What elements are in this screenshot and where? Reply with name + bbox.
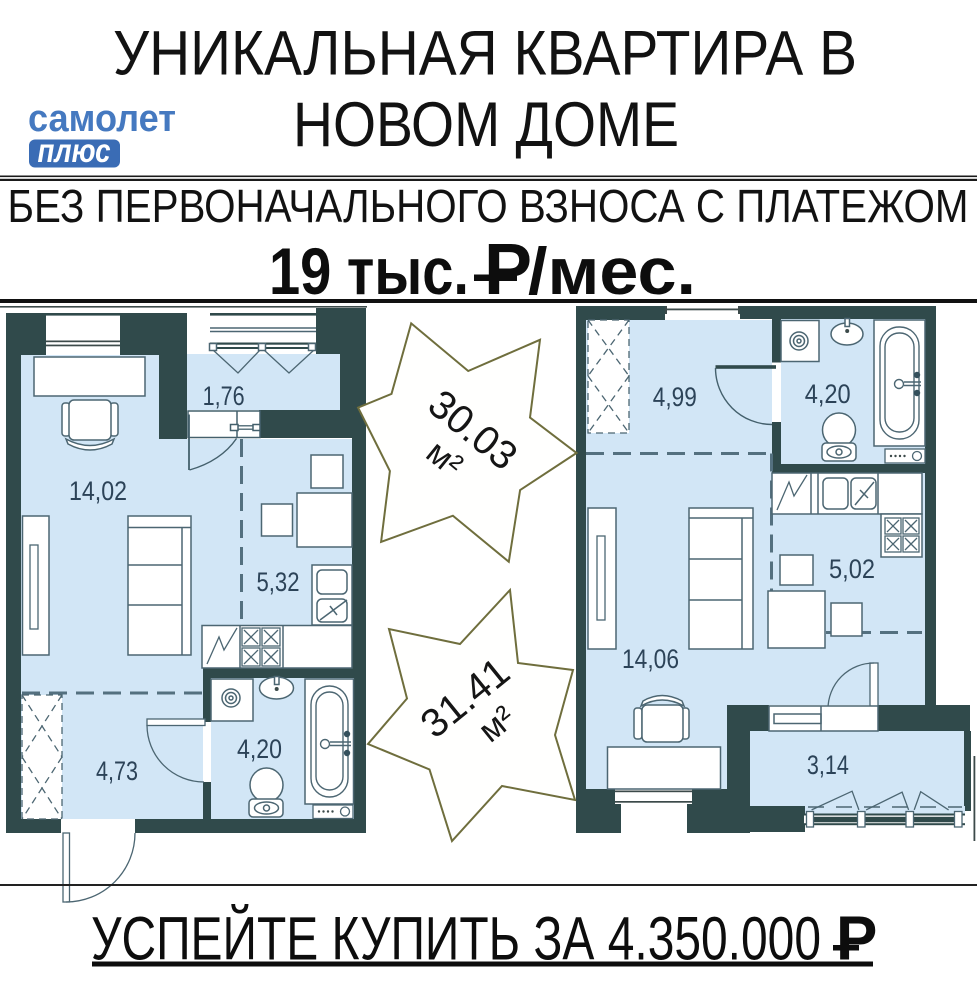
- svg-text:14,02: 14,02: [69, 476, 127, 506]
- svg-text:БЕЗ ПЕРВОНАЧАЛЬНОГО ВЗНОСА С П: БЕЗ ПЕРВОНАЧАЛЬНОГО ВЗНОСА С ПЛАТЕЖОМ: [8, 180, 969, 232]
- svg-text:5,32: 5,32: [257, 567, 300, 597]
- svg-text:1,76: 1,76: [203, 381, 245, 411]
- svg-text:УНИКАЛЬНАЯ КВАРТИРА В: УНИКАЛЬНАЯ КВАРТИРА В: [113, 19, 857, 89]
- svg-text:4,99: 4,99: [653, 382, 697, 412]
- svg-text:19 тыс.: 19 тыс.: [269, 234, 469, 308]
- svg-text:/мес.: /мес.: [528, 234, 696, 308]
- svg-text:3,14: 3,14: [807, 750, 849, 780]
- svg-text:НОВОМ ДОМЕ: НОВОМ ДОМЕ: [293, 90, 679, 160]
- svg-text:5,02: 5,02: [829, 554, 875, 584]
- svg-text:плюс: плюс: [38, 132, 111, 169]
- svg-text:4,73: 4,73: [96, 756, 138, 786]
- svg-text:4,20: 4,20: [237, 734, 282, 764]
- svg-text:4,20: 4,20: [805, 379, 851, 409]
- svg-text:Р: Р: [484, 230, 532, 310]
- svg-text:14,06: 14,06: [622, 644, 679, 674]
